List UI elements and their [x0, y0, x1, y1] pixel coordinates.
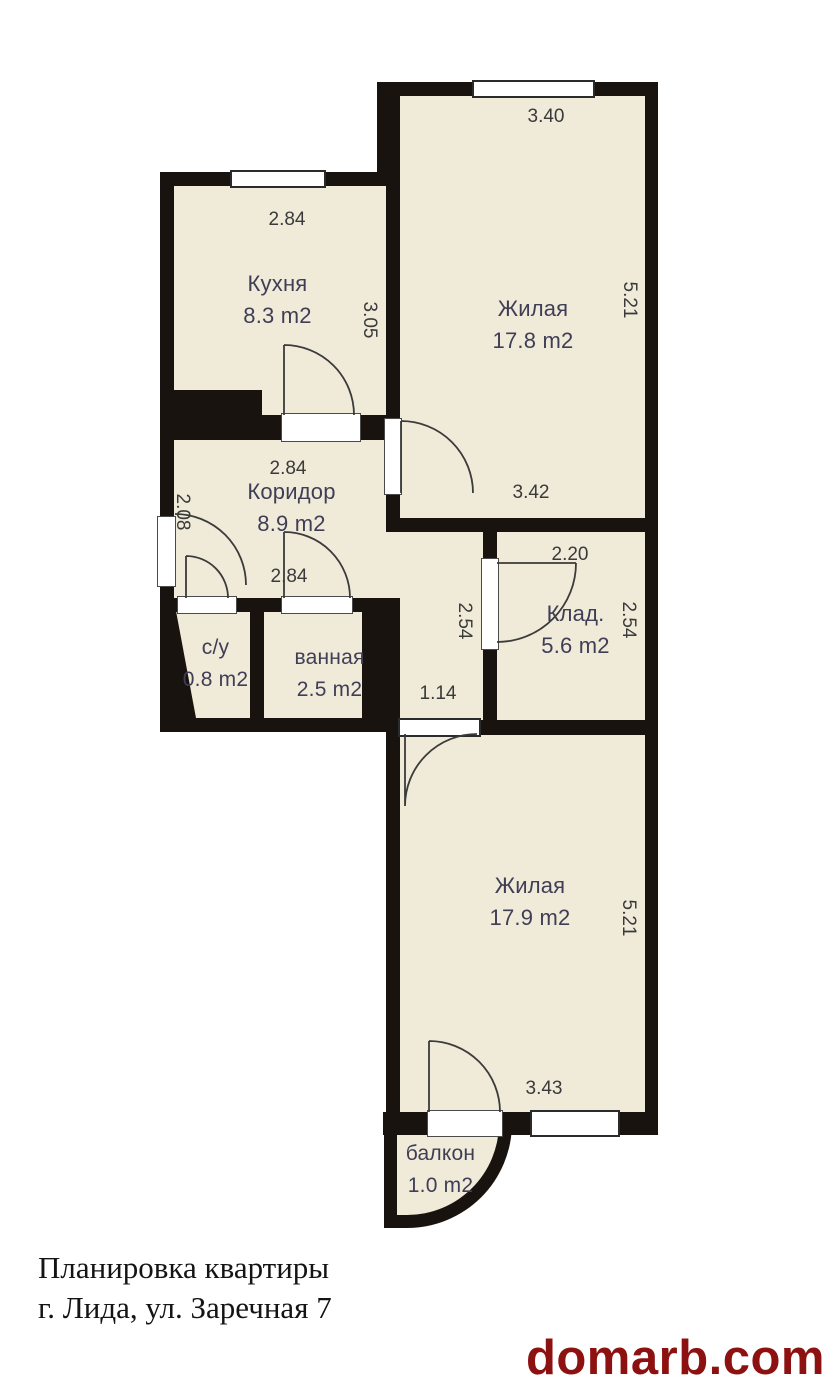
room-area: 8.9 m2 [204, 508, 379, 540]
room-label-living1: Жилая 17.8 m2 [443, 293, 623, 357]
door-opening-balcony [427, 1110, 503, 1137]
dim-living1-bottom: 3.42 [496, 482, 566, 504]
watermark: domarb.com [526, 1332, 825, 1384]
dim-living2-right: 5.21 [617, 888, 639, 948]
room-name: Жилая [443, 293, 623, 325]
dim-corridor-bottom: 2.84 [254, 566, 324, 588]
wall [386, 720, 400, 1123]
dim-passage-width: 1.14 [403, 683, 473, 705]
door-opening-storage [481, 558, 499, 650]
caption-line2: г. Лида, ул. Заречная 7 [38, 1288, 458, 1328]
door-opening-living1 [384, 418, 402, 495]
room-name: с/у [168, 632, 263, 664]
dim-living1-top: 3.40 [511, 106, 581, 128]
room-area: 17.9 m2 [440, 902, 620, 934]
wall [160, 390, 262, 420]
door-opening-bath [281, 596, 353, 614]
caption: Планировка квартиры г. Лида, ул. Заречна… [38, 1248, 458, 1328]
wall [645, 82, 658, 1135]
caption-line1: Планировка квартиры [38, 1248, 458, 1288]
door-opening-kitchen [281, 413, 361, 442]
room-area: 0.8 m2 [168, 664, 263, 696]
window-living2 [530, 1110, 620, 1137]
room-name: Кухня [190, 268, 365, 300]
dim-storage-right: 2.54 [617, 590, 639, 650]
dim-corridor-left: 2.08 [171, 482, 193, 542]
dim-corridor-top: 2.84 [253, 458, 323, 480]
room-name: ванная [262, 642, 397, 674]
room-name: Жилая [440, 870, 620, 902]
dim-kitchen-top: 2.84 [252, 209, 322, 231]
door-opening-wc [177, 596, 237, 614]
floor-plan-canvas: Кухня 8.3 m2 Жилая 17.8 m2 Коридор 8.9 m… [0, 0, 835, 1395]
room-label-balcony: балкон 1.0 m2 [383, 1138, 498, 1202]
dim-kitchen-right: 3.05 [358, 290, 380, 350]
room-name: Коридор [204, 476, 379, 508]
wall [480, 720, 658, 735]
room-area: 1.0 m2 [383, 1170, 498, 1202]
dim-passage-height: 2.54 [453, 591, 475, 651]
threshold-passage [398, 718, 481, 737]
room-label-corridor: Коридор 8.9 m2 [204, 476, 379, 540]
window-living1 [472, 80, 595, 98]
room-area: 8.3 m2 [190, 300, 365, 332]
room-label-kitchen: Кухня 8.3 m2 [190, 268, 365, 332]
room-label-bath: ванная 2.5 m2 [262, 642, 397, 706]
room-label-living2: Жилая 17.9 m2 [440, 870, 620, 934]
room-label-wc: с/у 0.8 m2 [168, 632, 263, 696]
wall [160, 718, 400, 732]
room-area: 17.8 m2 [443, 325, 623, 357]
wall [386, 518, 658, 532]
dim-living1-right: 5.21 [618, 270, 640, 330]
room-area: 2.5 m2 [262, 674, 397, 706]
wall [377, 82, 400, 186]
window-kitchen [230, 170, 326, 188]
dim-living2-bottom: 3.43 [509, 1078, 579, 1100]
dim-storage-top: 2.20 [535, 544, 605, 566]
room-name: балкон [383, 1138, 498, 1170]
